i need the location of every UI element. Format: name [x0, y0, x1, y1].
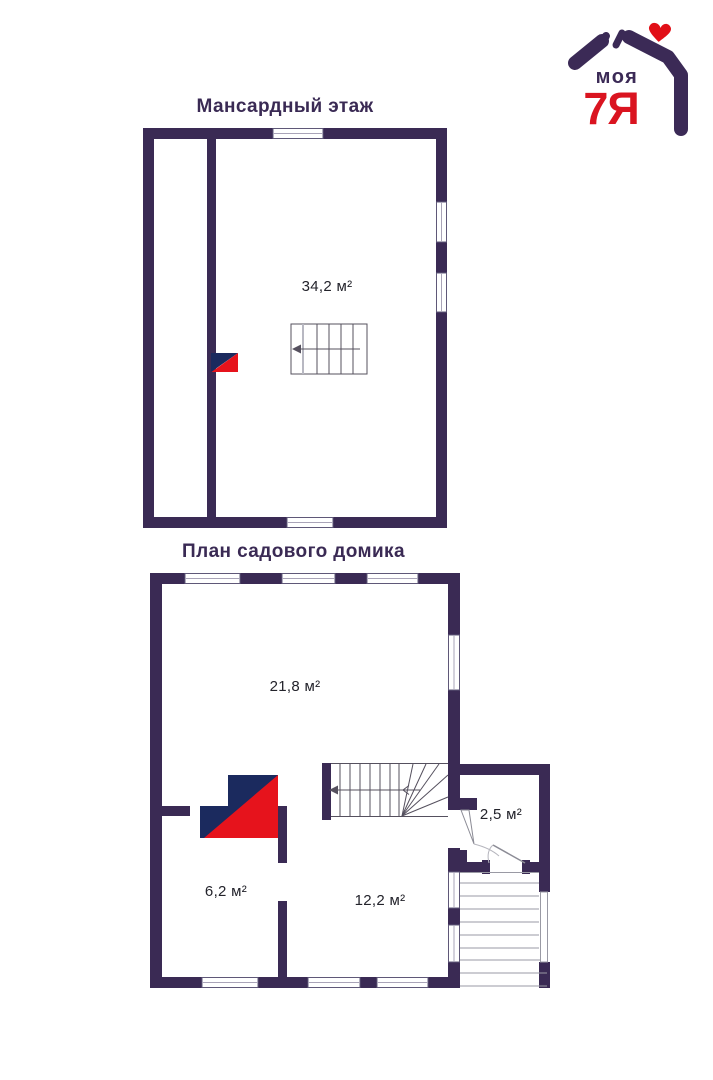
window-symbol [437, 273, 447, 312]
ground-logo-marker [200, 775, 278, 838]
window-symbol [437, 202, 447, 242]
attic-plan-title: Мансардный этаж [123, 96, 447, 118]
floor-plan-page: моя 7Я Мансардный этаж 34,2 м² План садо… [0, 0, 713, 1080]
attic-stairs [291, 324, 367, 374]
window-symbol [282, 574, 335, 584]
heart-icon [647, 22, 671, 44]
window-symbol [367, 574, 418, 584]
floor-plans-drawing [0, 0, 713, 1080]
window-symbol [273, 129, 323, 139]
window-symbol [449, 635, 460, 690]
ground-plan-title: План садового домика [133, 541, 454, 563]
window-symbol [202, 978, 258, 988]
ground-plan-drawing [150, 573, 550, 988]
entry-area-label: 2,5 м² [451, 806, 551, 823]
window-symbol [308, 978, 360, 988]
window-symbol [287, 518, 333, 528]
window-symbol [377, 978, 428, 988]
attic-plan-drawing [143, 128, 447, 528]
window-symbol [185, 574, 240, 584]
window-symbol [449, 872, 460, 908]
ground-stairs [329, 764, 448, 817]
entry-exterior-door [488, 845, 525, 863]
attic-logo-marker [211, 353, 238, 372]
logo-family: 7Я [571, 86, 651, 131]
living-area-label: 21,8 м² [235, 678, 355, 695]
porch-railing [541, 892, 548, 962]
attic-main-area-label: 34,2 м² [267, 278, 387, 295]
left-room-area-label: 6,2 м² [166, 883, 286, 900]
porch-steps [460, 873, 547, 987]
right-room-area-label: 12,2 м² [320, 892, 440, 909]
window-symbol [449, 925, 460, 962]
